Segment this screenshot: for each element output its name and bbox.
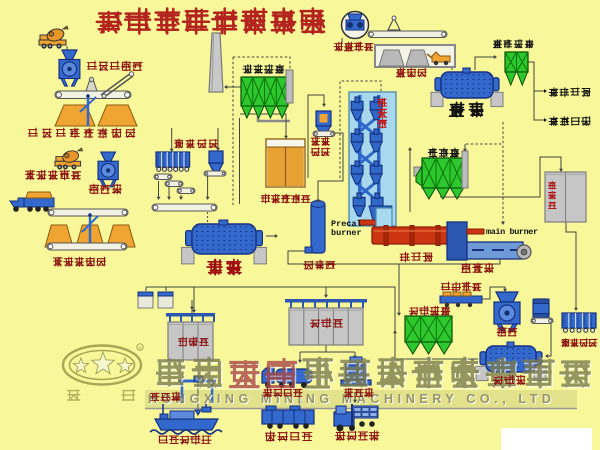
svg-text:main burner: main burner: [486, 227, 538, 237]
svg-text:HONGXING MINING MACHINERY CO.,: HONGXING MINING MACHINERY CO., LTD: [148, 392, 556, 406]
svg-text:burner: burner: [331, 228, 362, 238]
